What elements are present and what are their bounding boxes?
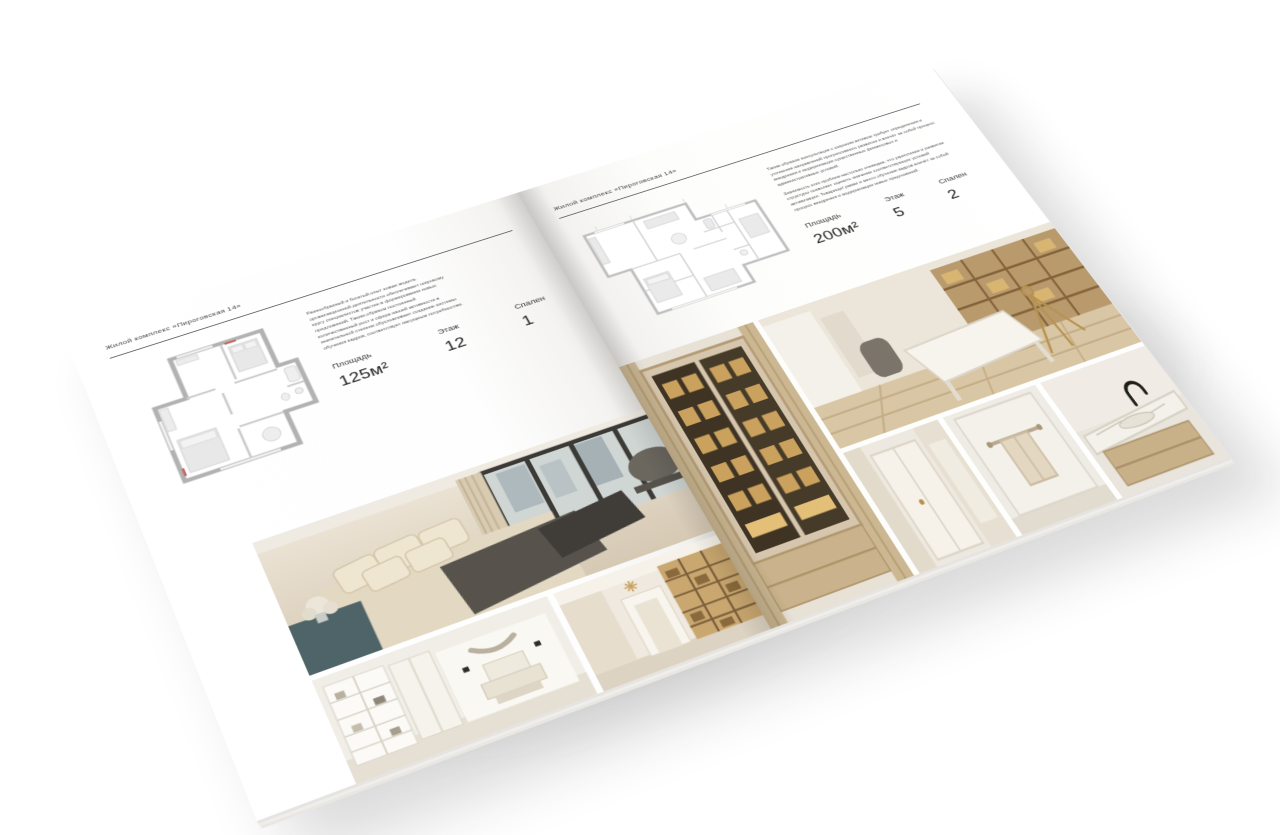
stat-floor: Этаж 12 bbox=[436, 322, 471, 355]
stat-bedrooms: Спален 2 bbox=[937, 171, 982, 204]
stat-bedrooms-value: 1 bbox=[519, 305, 557, 329]
stat-floor: Этаж 5 bbox=[883, 191, 919, 221]
stat-bedrooms: Спален 1 bbox=[513, 294, 558, 330]
stat-floor-label: Этаж bbox=[883, 191, 907, 204]
stat-bedrooms-value: 2 bbox=[944, 181, 981, 203]
stat-area: Площадь 125м² bbox=[331, 347, 393, 390]
stat-area: Площадь 200м² bbox=[803, 209, 864, 248]
stat-floor-value: 12 bbox=[442, 333, 471, 355]
floor-plan-200 bbox=[567, 173, 813, 333]
brochure-mockup-scene: Жилой комплекс «Пироговская 14» bbox=[0, 0, 1280, 835]
stat-floor-value: 5 bbox=[890, 201, 919, 221]
